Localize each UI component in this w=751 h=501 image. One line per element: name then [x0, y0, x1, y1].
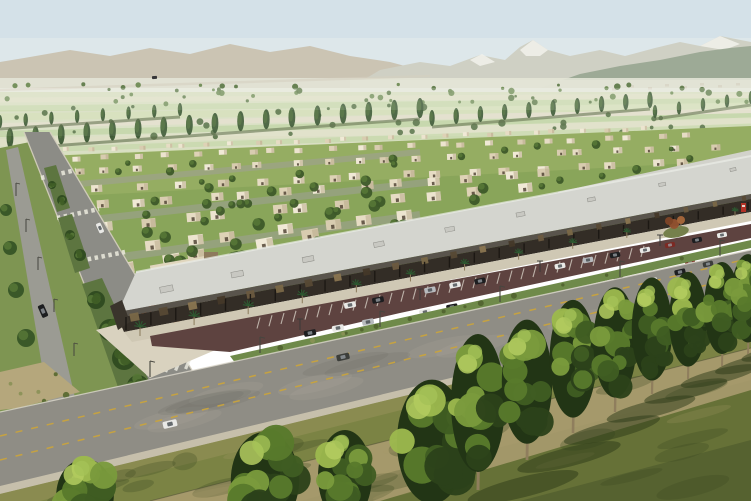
house: [358, 145, 366, 150]
house: [711, 144, 720, 150]
house: [72, 157, 80, 162]
house: [340, 137, 346, 141]
house: [276, 140, 282, 144]
house: [256, 141, 262, 145]
house: [463, 132, 469, 136]
house: [279, 187, 292, 196]
house: [91, 185, 102, 192]
house: [403, 170, 414, 177]
house: [421, 135, 427, 139]
house: [325, 159, 334, 165]
house: [391, 193, 406, 203]
house: [227, 141, 233, 145]
house: [427, 177, 440, 186]
house: [645, 147, 654, 153]
house: [218, 179, 229, 186]
house: [294, 160, 303, 166]
house: [266, 148, 274, 153]
house: [135, 154, 143, 159]
house: [219, 150, 227, 155]
house: [330, 175, 341, 182]
house: [100, 154, 108, 159]
house: [653, 159, 664, 166]
house: [580, 129, 586, 133]
house: [548, 129, 554, 133]
house: [537, 168, 550, 177]
house: [682, 132, 690, 137]
house: [75, 168, 84, 174]
house: [132, 199, 145, 208]
house: [161, 152, 169, 157]
house: [211, 192, 224, 201]
house: [175, 181, 186, 188]
house: [380, 157, 389, 163]
house: [659, 134, 667, 139]
aerial-development-rendering: [0, 0, 751, 501]
house: [237, 191, 250, 200]
house: [411, 156, 420, 162]
house: [505, 131, 511, 135]
house: [133, 165, 142, 171]
house: [567, 138, 575, 143]
house: [362, 136, 368, 140]
house: [622, 135, 630, 140]
house: [460, 175, 473, 184]
house: [188, 234, 204, 246]
house: [137, 183, 148, 190]
house: [389, 179, 402, 188]
house: [613, 147, 622, 153]
house: [145, 239, 161, 251]
house: [356, 214, 372, 226]
house: [203, 142, 209, 146]
house: [487, 133, 493, 137]
house: [294, 148, 302, 153]
house: [194, 151, 202, 156]
house: [277, 223, 293, 235]
house: [166, 144, 172, 148]
house: [517, 139, 525, 144]
house: [88, 147, 94, 151]
house: [63, 147, 69, 151]
house: [485, 140, 493, 145]
house: [534, 130, 540, 134]
house: [374, 145, 382, 150]
house: [204, 164, 213, 170]
house: [447, 154, 456, 160]
house: [178, 144, 184, 148]
house: [605, 135, 613, 140]
house: [250, 149, 258, 154]
house: [604, 128, 610, 132]
house: [572, 149, 581, 155]
house: [456, 142, 464, 147]
house: [429, 171, 440, 178]
house: [489, 153, 498, 159]
scene-svg: [0, 0, 751, 501]
house: [99, 167, 108, 173]
house: [579, 163, 590, 170]
house: [325, 219, 341, 231]
house: [252, 162, 261, 168]
house: [506, 171, 519, 180]
house: [557, 149, 566, 155]
house: [426, 191, 441, 201]
house: [518, 183, 533, 193]
house: [232, 163, 241, 169]
house: [388, 135, 394, 139]
house: [325, 139, 331, 143]
house: [186, 212, 201, 222]
house: [641, 126, 647, 130]
house: [544, 138, 552, 143]
house: [111, 147, 117, 151]
house: [622, 128, 628, 132]
house: [349, 173, 360, 180]
house: [440, 141, 448, 146]
house: [356, 158, 365, 164]
house: [160, 196, 173, 205]
house: [604, 162, 615, 169]
house: [141, 218, 156, 228]
house: [442, 133, 448, 137]
house: [257, 178, 268, 185]
house: [273, 204, 288, 214]
house: [294, 140, 300, 144]
house: [139, 146, 145, 150]
house: [407, 143, 415, 148]
house: [329, 146, 337, 151]
house: [513, 152, 522, 158]
